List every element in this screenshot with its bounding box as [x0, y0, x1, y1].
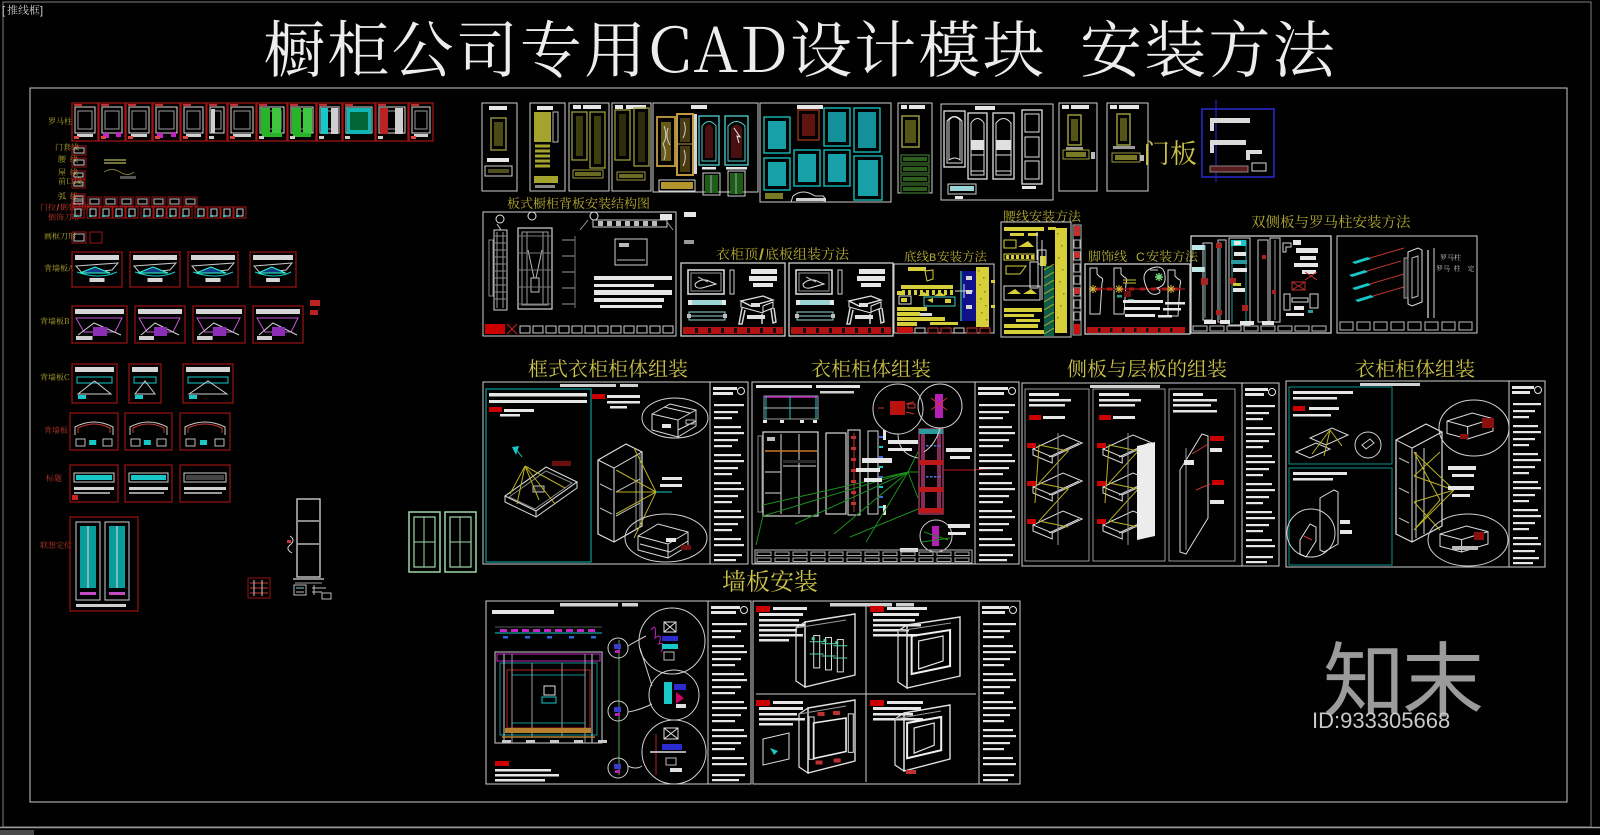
svg-text:]: ] [40, 5, 43, 17]
svg-text:[: [ [2, 5, 5, 17]
svg-text:ID:933305668: ID:933305668 [1312, 708, 1450, 733]
svg-text:B: B [929, 252, 936, 264]
svg-text:C: C [1136, 250, 1145, 264]
